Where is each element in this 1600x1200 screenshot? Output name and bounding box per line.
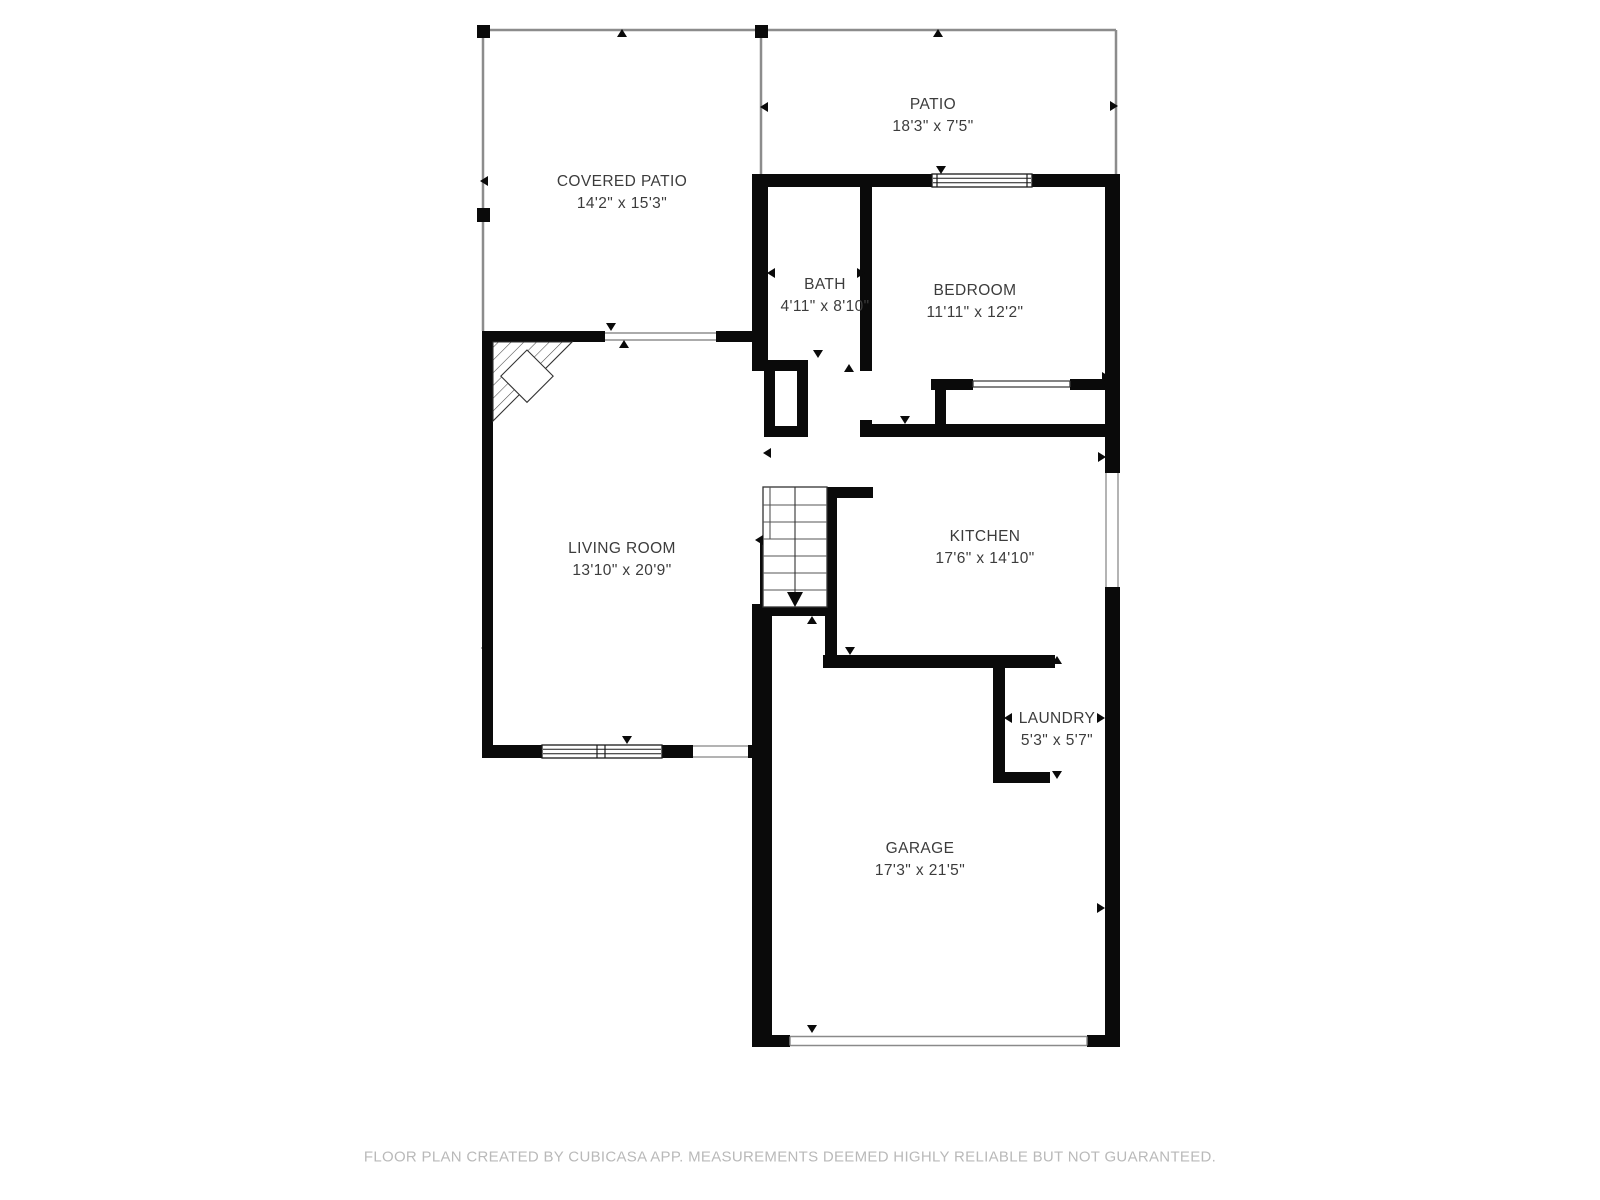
marker-garage-right <box>1097 903 1105 913</box>
room-dimensions: 17'6" x 14'10" <box>935 550 1034 567</box>
room-name: LIVING ROOM <box>568 540 676 557</box>
marker-bath-left <box>767 268 775 278</box>
room-name: GARAGE <box>886 840 955 857</box>
marker-stair-left <box>755 535 763 545</box>
room-label-covered-patio: COVERED PATIO 14'2" x 15'3" <box>557 171 687 215</box>
room-label-laundry: LAUNDRY 5'3" x 5'7" <box>1019 708 1096 752</box>
room-dimensions: 5'3" x 5'7" <box>1021 732 1093 749</box>
room-dimensions: 18'3" x 7'5" <box>892 118 973 135</box>
bedroom-closet-sliding-door <box>973 381 1070 387</box>
room-name: PATIO <box>910 96 956 113</box>
patio-sliding-door <box>605 333 716 340</box>
room-label-garage: GARAGE 17'3" x 21'5" <box>875 838 965 882</box>
room-label-bath: BATH 4'11" x 8'10" <box>780 274 869 318</box>
room-dimensions: 13'10" x 20'9" <box>572 562 671 579</box>
bedroom-window <box>932 174 1032 187</box>
room-name: KITCHEN <box>950 528 1021 545</box>
marker-bath-door-b <box>844 364 854 372</box>
room-dimensions: 17'3" x 21'5" <box>875 862 965 879</box>
floor-plan-canvas <box>0 0 1600 1200</box>
room-name: BATH <box>804 276 846 293</box>
marker-laundry-right <box>1097 713 1105 723</box>
marker-bedroom-window <box>936 166 946 174</box>
marker-laundry-left <box>1004 713 1012 723</box>
room-dimensions: 14'2" x 15'3" <box>577 195 667 212</box>
floor-plan-page: COVERED PATIO 14'2" x 15'3" PATIO 18'3" … <box>0 0 1600 1200</box>
room-name: COVERED PATIO <box>557 173 687 190</box>
room-label-bedroom: BEDROOM 11'11" x 12'2" <box>927 280 1024 324</box>
room-label-kitchen: KITCHEN 17'6" x 14'10" <box>935 526 1034 570</box>
living-room-window <box>542 745 662 758</box>
entry-door-opening <box>693 746 748 757</box>
marker-laundry-bottom-door <box>1052 771 1062 779</box>
marker-living-window <box>622 736 632 744</box>
staircase <box>763 487 827 607</box>
marker-garage-door <box>807 1025 817 1033</box>
room-name: LAUNDRY <box>1019 710 1096 727</box>
marker-bath-door-a <box>813 350 823 358</box>
marker-kitchen-garage-door <box>845 647 855 655</box>
room-name: BEDROOM <box>934 282 1017 299</box>
room-label-living-room: LIVING ROOM 13'10" x 20'9" <box>568 538 676 582</box>
room-dimensions: 11'11" x 12'2" <box>927 304 1024 321</box>
corner-fireplace <box>493 342 572 421</box>
marker-under-stair-door <box>807 616 817 624</box>
kitchen-exterior-opening <box>1106 473 1118 587</box>
marker-hall-left <box>763 448 771 458</box>
marker-patio-slider-b <box>619 340 629 348</box>
room-dimensions: 4'11" x 8'10" <box>780 298 869 315</box>
marker-patio-slider-a <box>606 323 616 331</box>
marker-bedroom-door <box>900 416 910 424</box>
footer-disclaimer: FLOOR PLAN CREATED BY CUBICASA APP. MEAS… <box>364 1149 1216 1166</box>
garage-door <box>790 1037 1087 1046</box>
room-label-patio: PATIO 18'3" x 7'5" <box>892 94 973 138</box>
marker-kitchen-opening <box>1098 452 1106 462</box>
